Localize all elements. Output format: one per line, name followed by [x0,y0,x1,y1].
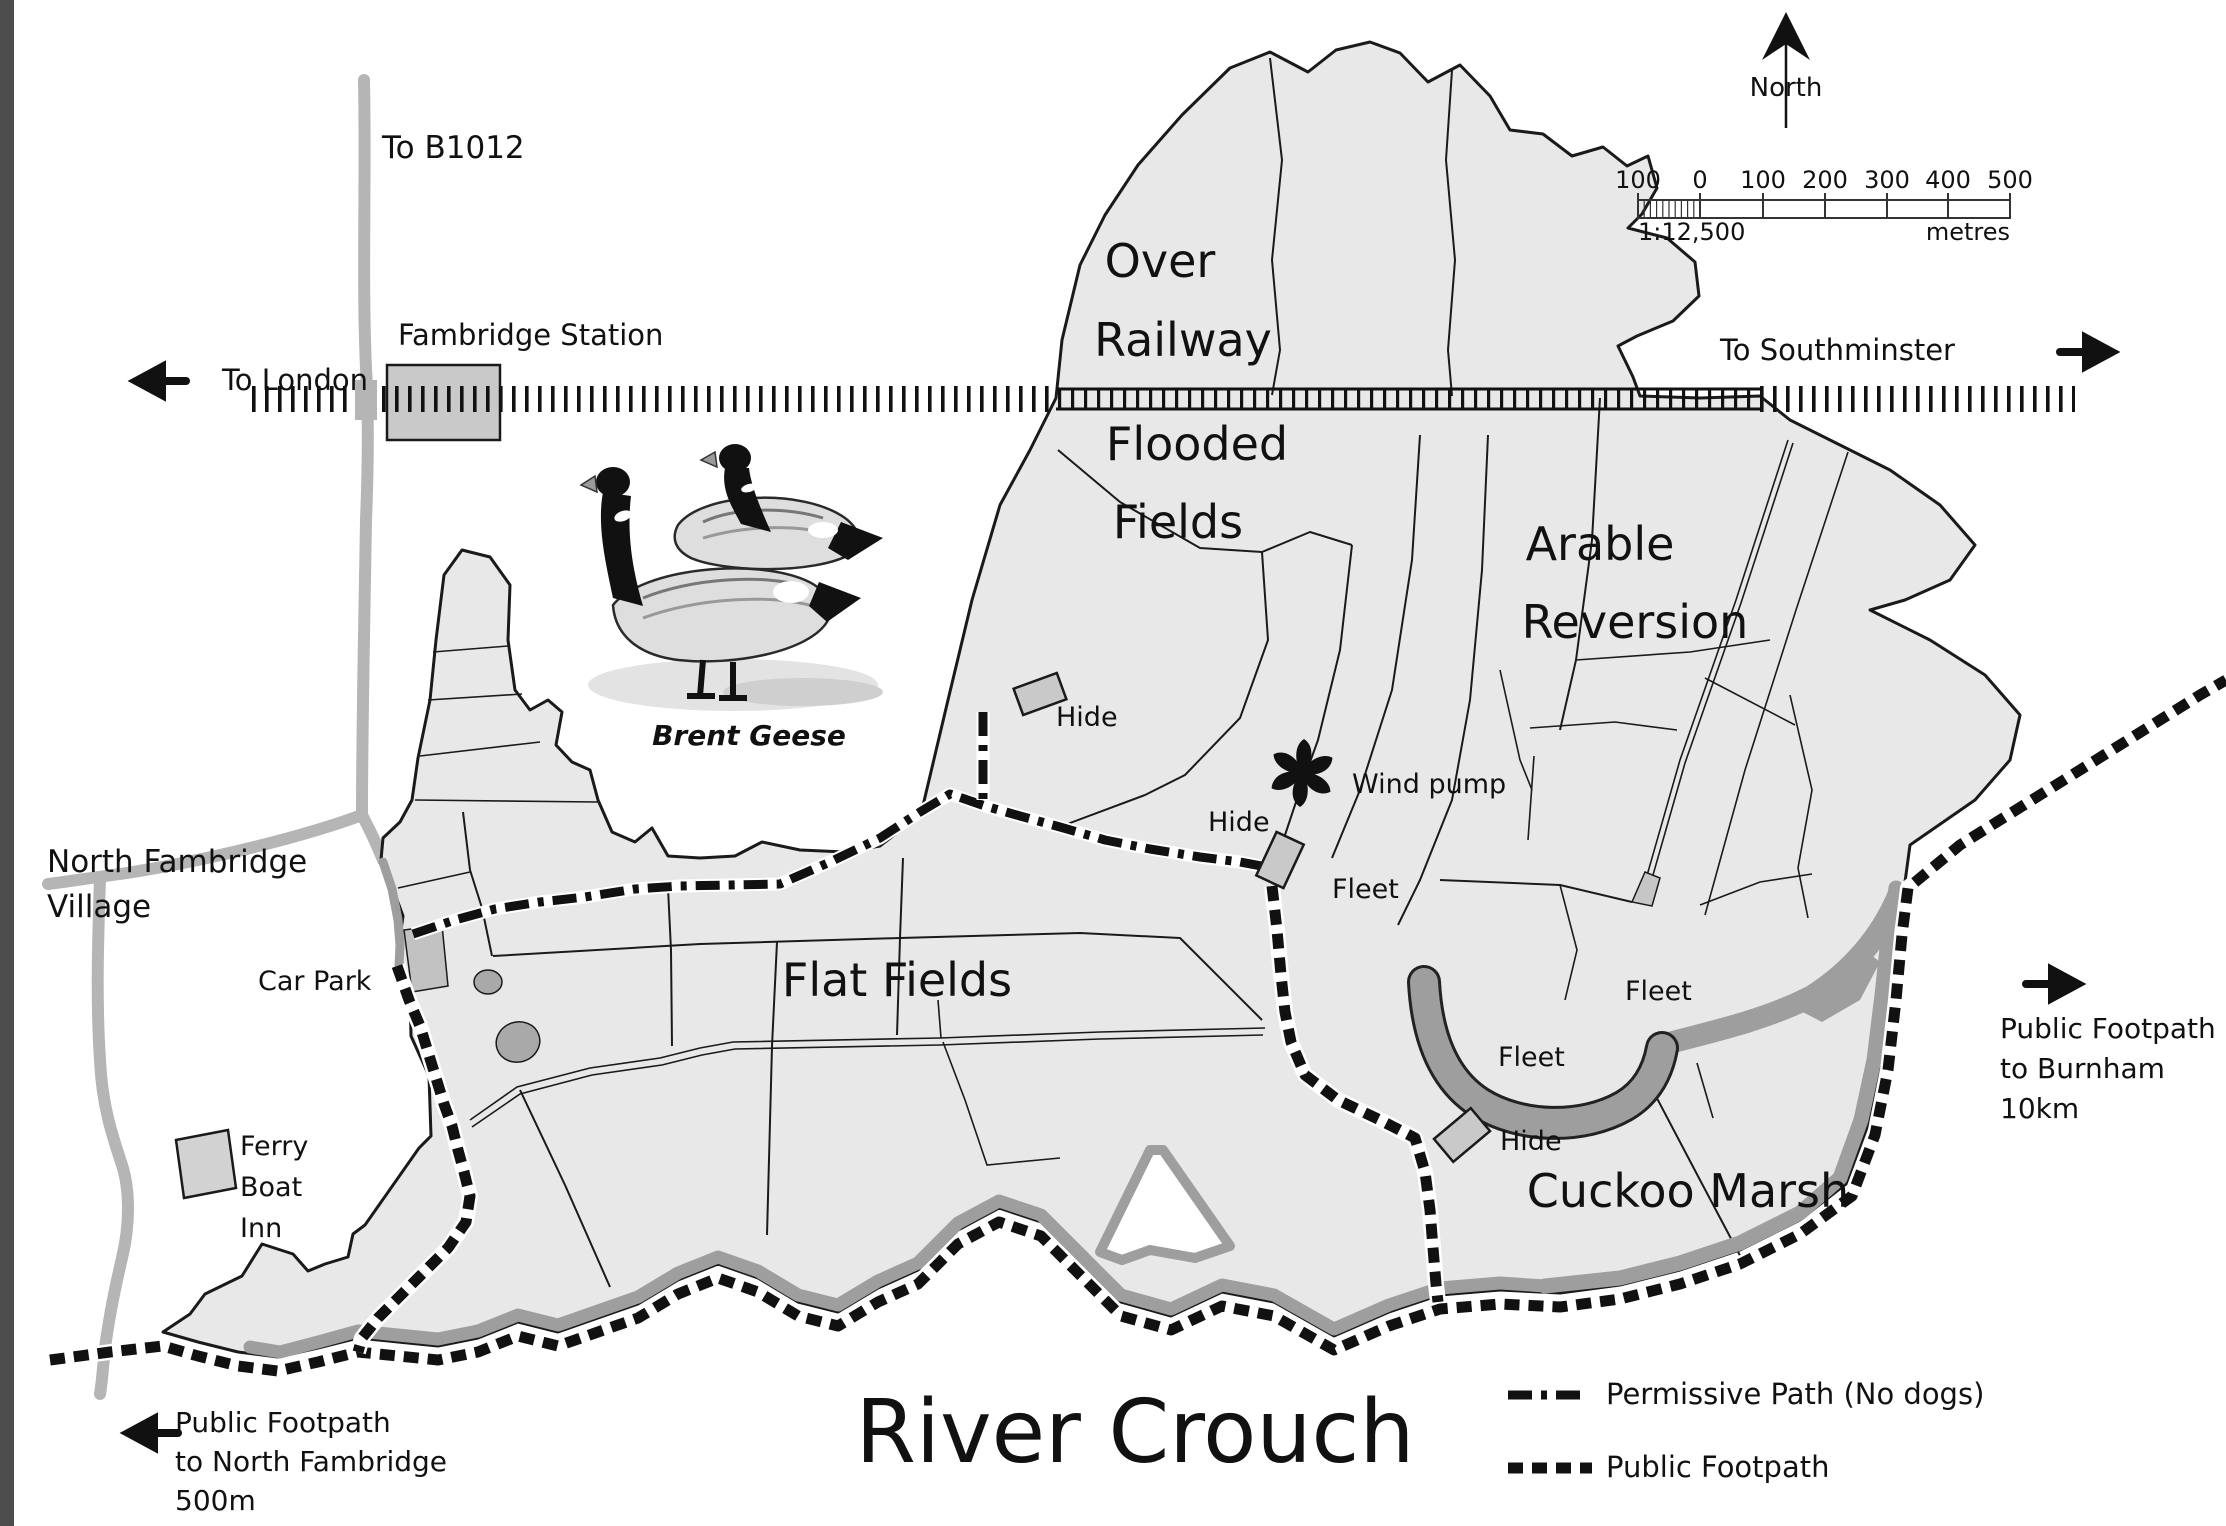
note-burnham-line1: Public Footpath [2000,1012,2216,1045]
scale-bar: 100 0 100 200 300 400 500 1:12,500 metre… [1615,166,2033,246]
label-ferry-line1: Ferry [240,1131,308,1162]
label-brent-geese: Brent Geese [652,719,846,752]
road-carpark-stub [362,815,383,860]
label-ferry-line3: Inn [240,1213,282,1244]
scale-tick-label: 500 [1987,166,2033,194]
road-village-south [98,877,128,1394]
note-north-fambridge-line1: Public Footpath [175,1406,391,1439]
compass-label: North [1750,73,1823,103]
label-area-flat-fields: Flat Fields [782,953,1012,1007]
scale-tick-label: 100 [1615,166,1661,194]
label-ferry-line2: Boat [240,1172,302,1203]
scale-tick-label: 0 [1692,166,1707,194]
label-hide-cuckoo: Hide [1500,1126,1562,1157]
label-area-fields: Fields [1113,495,1243,549]
scale-tick-label: 100 [1740,166,1786,194]
label-village-line1: North Fambridge [47,844,307,880]
railway-ticks-east [1760,386,2075,412]
brent-geese-illustration [581,444,883,711]
page-edge-bar [0,0,14,1526]
ferry-boat-inn-building [176,1130,236,1198]
north-fambridge-footpath-arrow-icon [128,1419,178,1447]
scale-tick-label: 400 [1925,166,1971,194]
scale-ratio: 1:12,500 [1638,218,1745,246]
legend-permissive-label: Permissive Path (No dogs) [1606,1377,1984,1411]
pond [474,970,502,994]
label-area-reversion: Reversion [1522,595,1749,649]
label-car-park: Car Park [258,966,372,997]
label-hide-north: Hide [1056,702,1118,733]
railway-ladder [1056,389,1760,409]
scale-tick-label: 200 [1802,166,1848,194]
label-hide-middle: Hide [1208,807,1270,838]
to-london-arrow-icon [136,367,186,395]
note-north-fambridge-line2: to North Fambridge [175,1445,447,1478]
compass: North [1750,12,1823,128]
note-burnham-line2: to Burnham [2000,1052,2165,1085]
label-area-flooded: Flooded [1106,417,1288,471]
label-fambridge-station: Fambridge Station [398,318,663,352]
scale-tick-label: 300 [1864,166,1910,194]
note-burnham-line3: 10km [2000,1092,2079,1125]
label-wind-pump: Wind pump [1352,769,1506,800]
river-crouch-reserve-map: North 100 0 100 200 300 400 500 1:12,500… [0,0,2226,1526]
label-area-railway: Railway [1094,313,1272,367]
label-to-southminster: To Southminster [1719,333,1955,367]
legend-footpath-label: Public Footpath [1606,1450,1829,1484]
label-to-b1012: To B1012 [381,130,525,166]
label-fleet-2: Fleet [1498,1042,1565,1073]
map-page: North 100 0 100 200 300 400 500 1:12,500… [0,0,2226,1526]
to-southminster-arrow-icon [2060,338,2112,366]
label-area-over: Over [1105,234,1216,288]
roads [48,80,383,1394]
note-north-fambridge-line3: 500m [175,1484,256,1517]
label-fleet-1: Fleet [1332,874,1399,905]
label-area-arable: Arable [1526,517,1675,571]
burnham-footpath-arrow-icon [2026,970,2078,998]
label-to-london: To London [221,363,368,397]
label-village-line2: Village [47,889,151,925]
legend: Permissive Path (No dogs) Public Footpat… [1508,1377,1984,1484]
label-fleet-3: Fleet [1625,976,1692,1007]
label-area-cuckoo-marsh: Cuckoo Marsh [1527,1164,1849,1218]
map-title: River Crouch [855,1381,1414,1483]
scale-unit: metres [1926,218,2010,246]
road-to-b1012 [362,80,368,815]
